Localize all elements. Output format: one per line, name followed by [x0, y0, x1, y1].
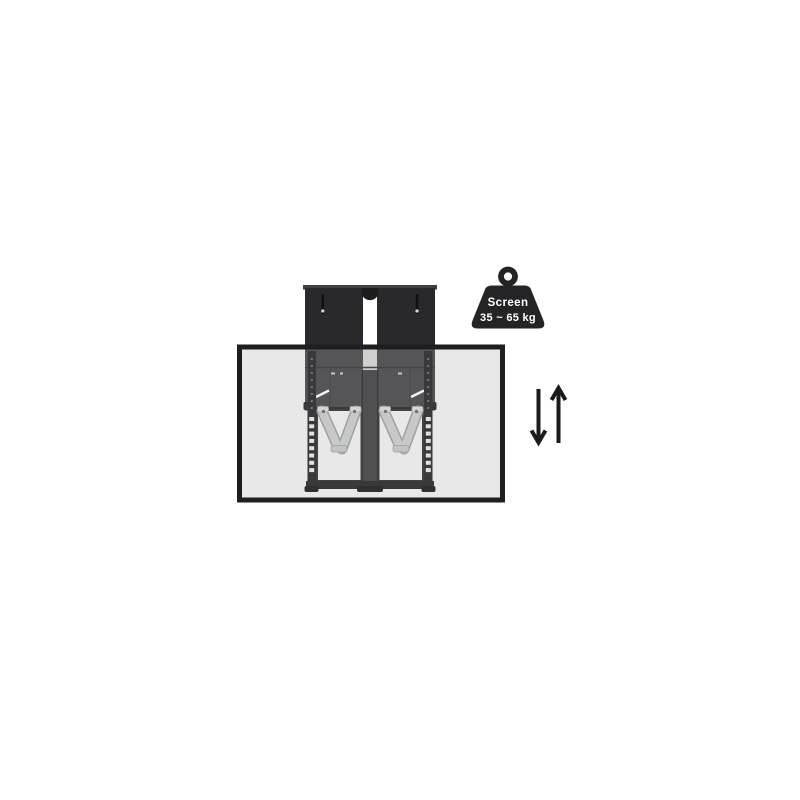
arrow-up-icon	[552, 388, 566, 443]
pivot-screw	[415, 410, 418, 413]
bracket-right-screw-dot	[415, 309, 418, 312]
product-illustration: Screen 35 ~ 65 kg	[0, 0, 800, 800]
weight-badge-range: 35 ~ 65 kg	[480, 312, 536, 324]
right-foot	[422, 486, 436, 492]
center-foot	[357, 486, 383, 492]
arm-foot	[331, 446, 347, 453]
arm-foot	[393, 446, 409, 453]
housing-screw-mark	[340, 373, 343, 375]
height-adjust-arrows	[532, 388, 566, 443]
bracket-left-screw-dot	[321, 309, 324, 312]
pivot-screw	[322, 410, 325, 413]
pivot-screw	[353, 410, 356, 413]
housing-screw-mark	[398, 373, 402, 375]
right-rail-tab	[432, 402, 437, 410]
left-foot	[305, 486, 319, 492]
arrow-down-icon	[532, 389, 546, 443]
weight-badge-label: Screen	[488, 297, 529, 309]
kettlebell-ring	[501, 270, 515, 284]
center-lift-column	[362, 370, 379, 489]
weight-capacity-badge: Screen 35 ~ 65 kg	[472, 270, 545, 329]
wall-bracket-top	[303, 285, 437, 347]
tv-lift-mount-drawing: Screen 35 ~ 65 kg	[0, 0, 800, 800]
pivot-screw	[384, 410, 387, 413]
left-rail-tab	[304, 402, 309, 410]
housing-screw-mark	[331, 373, 335, 375]
